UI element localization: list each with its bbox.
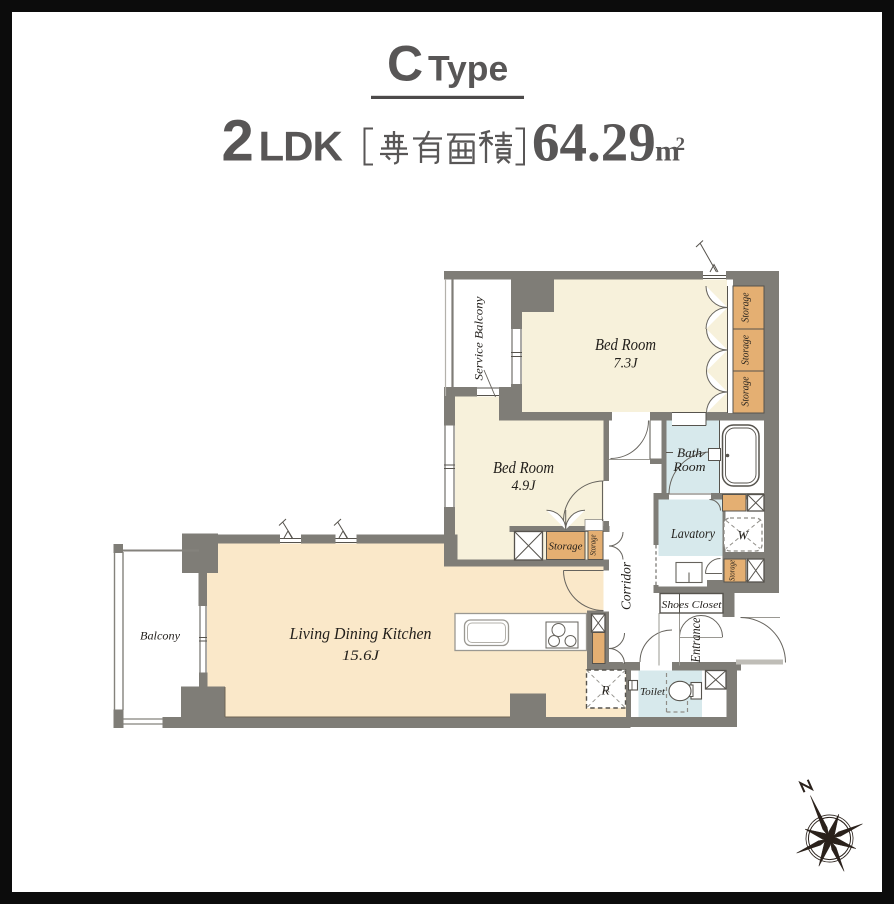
svg-text:Service Balcony: Service Balcony — [472, 296, 486, 381]
svg-text:Storage: Storage — [728, 560, 737, 581]
svg-text:Storage: Storage — [741, 334, 752, 365]
svg-text:4.9J: 4.9J — [512, 478, 537, 494]
svg-text:Lavatory: Lavatory — [670, 526, 715, 541]
svg-text:Living Dining Kitchen: Living Dining Kitchen — [289, 624, 432, 643]
svg-text:Storage: Storage — [741, 292, 752, 323]
svg-text:Corridor: Corridor — [619, 561, 634, 610]
svg-text:Type: Type — [428, 49, 508, 89]
svg-text:15.6J: 15.6J — [342, 648, 380, 664]
svg-text:64.29: 64.29 — [532, 112, 656, 173]
svg-text:Toilet: Toilet — [640, 686, 666, 698]
svg-text:R: R — [601, 683, 610, 698]
svg-text:LDK: LDK — [259, 123, 343, 170]
svg-text:Storage: Storage — [549, 541, 583, 553]
svg-text:C: C — [387, 36, 423, 92]
svg-text:Balcony: Balcony — [140, 631, 181, 643]
svg-text:Entrance: Entrance — [688, 618, 703, 664]
svg-text:Room: Room — [672, 460, 705, 474]
svg-text:7.3J: 7.3J — [614, 356, 639, 372]
svg-text:Storage: Storage — [741, 376, 752, 407]
svg-text:W: W — [738, 529, 750, 543]
svg-text:Bed Room: Bed Room — [595, 335, 656, 354]
svg-text:Bath: Bath — [677, 446, 702, 460]
svg-text:Storage: Storage — [589, 534, 598, 555]
svg-text:Bed Room: Bed Room — [493, 458, 554, 477]
svg-text:2: 2 — [222, 109, 254, 174]
svg-text:2: 2 — [676, 134, 686, 155]
svg-text:Shoes Closet: Shoes Closet — [662, 599, 723, 611]
